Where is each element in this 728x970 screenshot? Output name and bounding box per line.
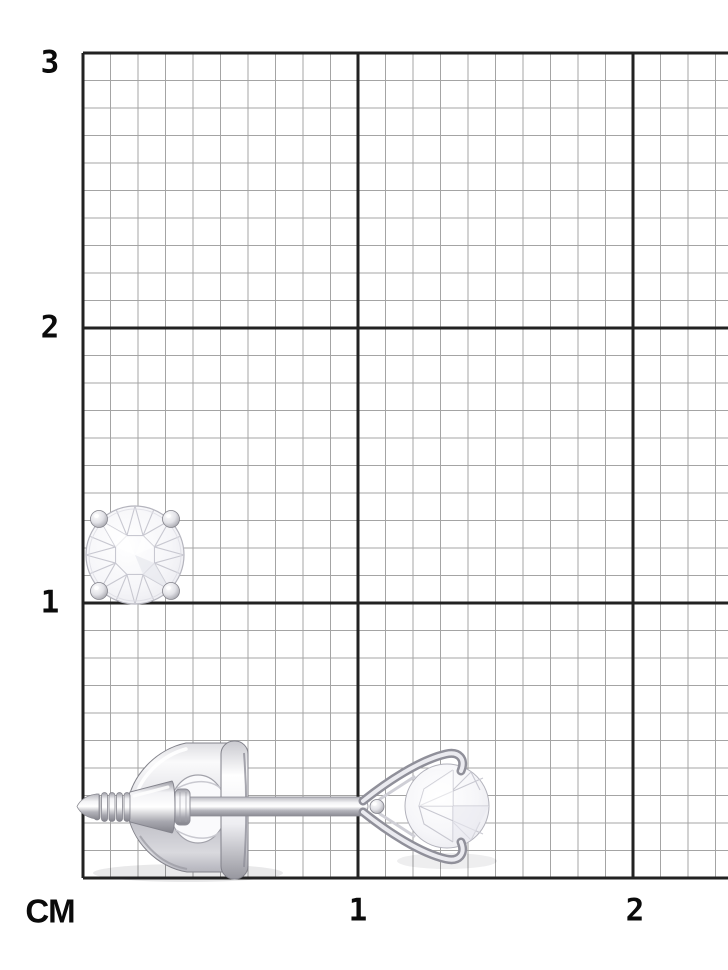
thread-rib — [102, 793, 108, 822]
y-axis-label-2: 2 — [33, 313, 67, 344]
earring-post — [166, 797, 368, 816]
thread-rib — [124, 793, 130, 822]
prong-ball — [163, 511, 180, 528]
grid-and-earrings-scene — [0, 0, 728, 970]
post-bracket — [175, 789, 190, 825]
prong-vertex-ball — [370, 800, 384, 814]
prong-ball — [163, 583, 180, 600]
thread-rib — [117, 793, 123, 822]
post-tip — [77, 794, 99, 819]
unit-label-cm: CM — [17, 895, 83, 928]
earring-side-view — [77, 741, 497, 882]
x-axis-label-1: 1 — [338, 896, 378, 927]
x-axis-label-2: 2 — [615, 896, 655, 927]
diamond-side — [405, 764, 489, 848]
y-axis-label-3: 3 — [33, 48, 67, 79]
measurement-image: 3 2 1 CM 1 2 — [0, 0, 728, 970]
earring-front-view — [86, 506, 184, 604]
prong-ball — [91, 511, 108, 528]
thread-rib — [109, 793, 115, 822]
prong-ball — [91, 583, 108, 600]
y-axis-label-1: 1 — [33, 588, 67, 619]
